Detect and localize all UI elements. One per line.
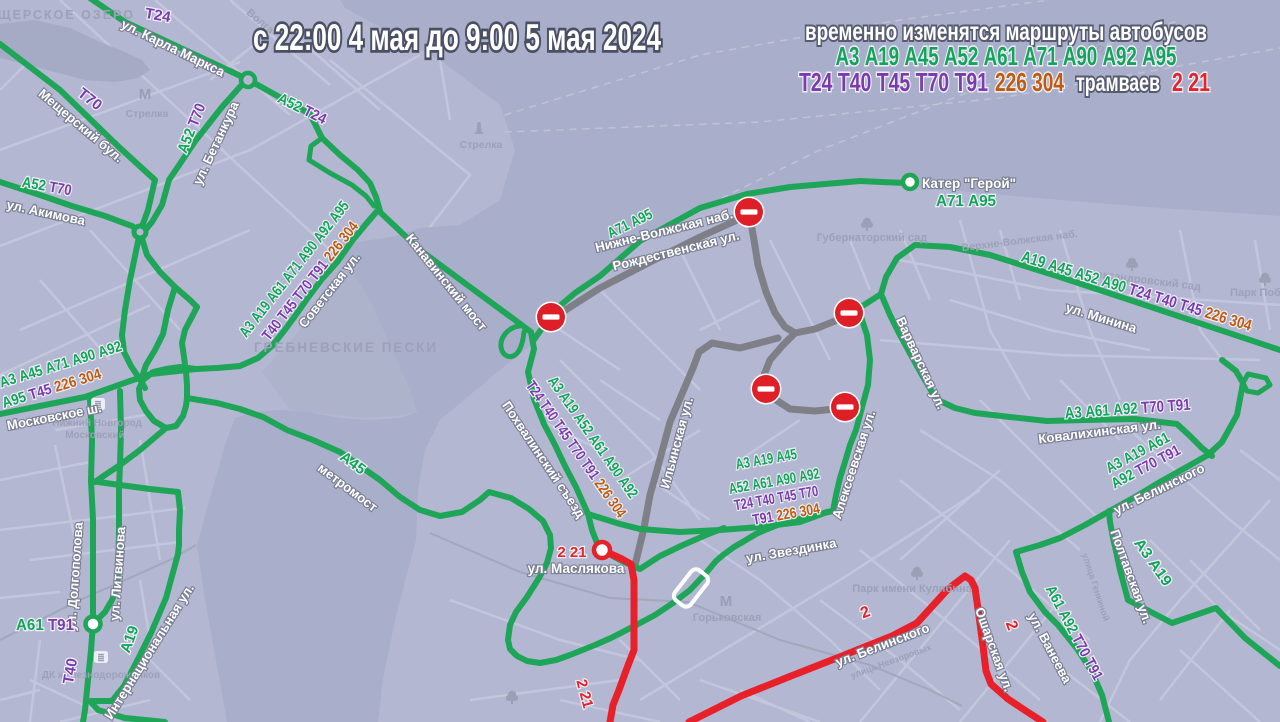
svg-text:ул. Маслякова: ул. Маслякова xyxy=(528,561,625,576)
svg-text:А61 Т91: А61 Т91 xyxy=(16,617,74,634)
svg-text:Стрелка: Стрелка xyxy=(460,139,503,151)
svg-text:ГРЕБНЕВСКИЕ ПЕСКИ: ГРЕБНЕВСКИЕ ПЕСКИ xyxy=(254,340,438,355)
svg-text:с 22:00 4 мая до 9:00 5 мая 20: с 22:00 4 мая до 9:00 5 мая 2024 xyxy=(253,17,661,58)
svg-text:226 304: 226 304 xyxy=(995,67,1064,97)
svg-text:2 21: 2 21 xyxy=(557,544,586,561)
svg-text:М: М xyxy=(720,593,733,610)
svg-text:трамваев: трамваев xyxy=(1076,69,1160,97)
svg-text:Т24 Т40 Т45 Т70 Т91: Т24 Т40 Т45 Т70 Т91 xyxy=(799,67,988,97)
svg-text:Парк Побед: Парк Побед xyxy=(1230,287,1280,299)
svg-text:Парк имени Кулибина: Парк имени Кулибина xyxy=(852,583,972,595)
svg-text:Горьковская: Горьковская xyxy=(693,612,762,624)
svg-text:МЕЩЕРСКОЕ ОЗЕРО: МЕЩЕРСКОЕ ОЗЕРО xyxy=(0,8,135,22)
svg-text:≣: ≣ xyxy=(97,653,105,663)
svg-text:Катер "Герой": Катер "Герой" xyxy=(922,176,1016,191)
svg-text:М: М xyxy=(139,86,152,103)
svg-text:2 21: 2 21 xyxy=(1172,67,1210,97)
svg-text:Стрелка: Стрелка xyxy=(126,108,169,120)
svg-text:А71 А95: А71 А95 xyxy=(936,193,996,210)
svg-text:Губернаторский сад: Губернаторский сад xyxy=(817,232,928,244)
svg-text:Московский: Московский xyxy=(65,430,125,441)
